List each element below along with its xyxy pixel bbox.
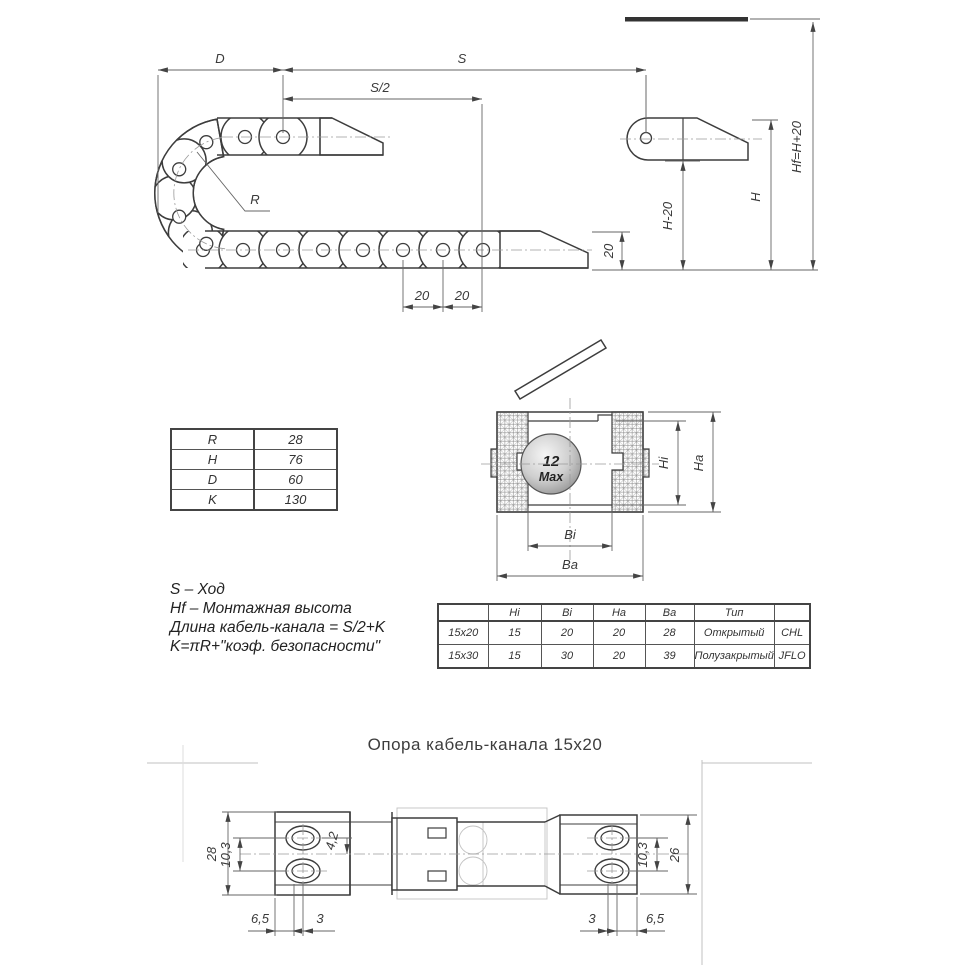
dim-label-h: H [748,192,763,202]
chain-upper-end-bracket [320,118,383,155]
spec-cell: 30 [541,645,593,669]
drawing-notes: S – Ход Hf – Монтажная высота Длина кабе… [170,580,385,656]
param-name: R [171,429,254,450]
dim-label-26: 26 [667,847,682,863]
spec-cell: 20 [593,621,645,645]
note-line: Длина кабель-канала = S/2+K [170,618,385,637]
param-value: 28 [254,429,337,450]
sheet-frame-lines [147,745,812,965]
dim-label-bi: Bi [564,527,577,542]
spec-header-cell: Bi [541,604,593,621]
spec-table: Hi Bi Ha Ba Тип 15x20 15 20 20 28 Открыт… [437,603,811,669]
dim-label-h-minus-20: H-20 [660,201,675,230]
note-line: S – Ход [170,580,385,599]
table-row: D 60 [171,470,337,490]
dim-label-v20: 20 [601,243,616,259]
note-line: K=πR+"коэф. безопасности" [170,637,385,656]
param-value: 76 [254,450,337,470]
table-row: H 76 [171,450,337,470]
chain-side-view [152,17,748,274]
spec-header-cell: Тип [694,604,774,621]
spec-cell: 15 [488,621,541,645]
spec-header-cell: Ha [593,604,645,621]
spec-header-row: Hi Bi Ha Ba Тип [438,604,810,621]
note-line: Hf – Монтажная высота [170,599,385,618]
chain-lower-end-bracket [500,231,588,268]
ball-max-label: Max [539,470,564,484]
spec-header-cell: Hi [488,604,541,621]
spec-row-15x20: 15x20 15 20 20 28 Открытый CHL [438,621,810,645]
support-plan-view [275,812,637,895]
dim-label-ha: Ha [691,455,706,472]
support-view-title: Опора кабель-канала 15x20 [0,735,970,755]
param-name: K [171,490,254,511]
dim-label-3-left: 3 [316,911,324,926]
dim-label-28: 28 [204,846,219,862]
param-value: 60 [254,470,337,490]
dim-label-s-half: S/2 [370,80,390,95]
ball-diameter-label: 12 [543,453,560,470]
parameters-table: R 28 H 76 D 60 K 130 [170,428,338,511]
dim-label-65-right: 6,5 [646,911,665,926]
dim-label-hf: Hf=H+20 [789,120,804,173]
section-lid-bar [515,340,606,399]
table-row: K 130 [171,490,337,511]
dim-label-hi: Hi [656,456,671,469]
param-value: 130 [254,490,337,511]
spec-cell: 20 [541,621,593,645]
spec-cell: JFLO [774,645,810,669]
spec-cell: Полузакрытый [694,645,774,669]
dim-label-103-left: 10,3 [218,842,233,868]
dim-label-20b: 20 [454,288,470,303]
drawing-sheet: D S S/2 R 20 20 20 H-20 H Hf=H+20 12 Max [0,0,970,970]
spec-cell: Открытый [694,621,774,645]
param-name: D [171,470,254,490]
spec-cell: 20 [593,645,645,669]
technical-drawing: D S S/2 R 20 20 20 H-20 H Hf=H+20 12 Max [0,0,970,970]
dim-label-65-left: 6,5 [251,911,270,926]
dim-label-3-right: 3 [588,911,596,926]
spec-cell: 15x20 [438,621,488,645]
dim-label-s: S [458,51,467,66]
dim-label-ba: Ba [562,557,578,572]
spec-header-cell [774,604,810,621]
spec-cell: 28 [645,621,694,645]
table-row: R 28 [171,429,337,450]
dim-label-20a: 20 [414,288,430,303]
spec-cell: 15x30 [438,645,488,669]
spec-row-15x30: 15x30 15 30 20 39 Полузакрытый JFLO [438,645,810,669]
mounting-surface-line [625,17,748,22]
dim-label-d: D [215,51,224,66]
spec-header-cell [438,604,488,621]
spec-header-cell: Ba [645,604,694,621]
spec-cell: CHL [774,621,810,645]
dim-label-103-right: 10,3 [635,842,650,868]
spec-cell: 15 [488,645,541,669]
dim-label-r: R [250,192,259,207]
spec-cell: 39 [645,645,694,669]
param-name: H [171,450,254,470]
